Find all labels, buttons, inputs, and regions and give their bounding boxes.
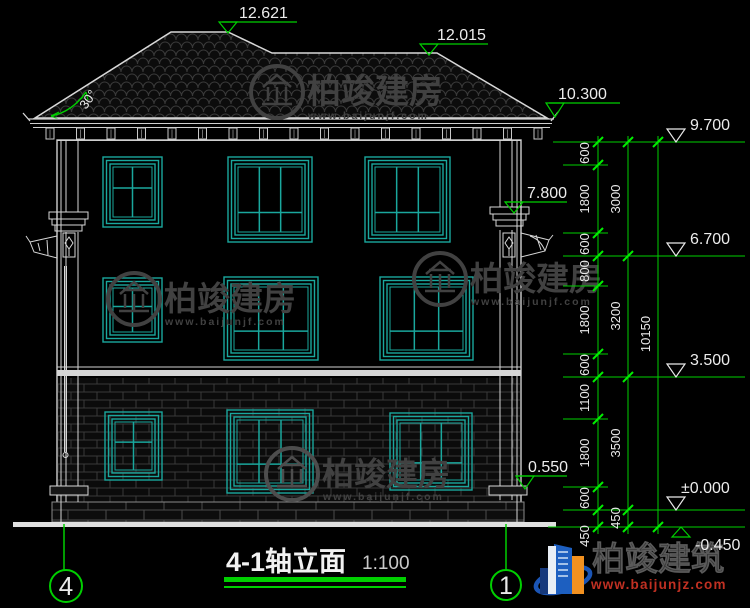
elevation-marker-ridge-main: 12.621: [219, 5, 297, 33]
watermark-url: www.baijunjf.com: [322, 491, 444, 503]
dim-label: 1800: [577, 306, 592, 335]
elevation-value: 7.800: [527, 185, 567, 202]
elevation-drawing: 30°: [0, 0, 750, 608]
dim-label-total: 10150: [638, 316, 653, 352]
building-body: [13, 140, 556, 527]
window: [365, 157, 450, 242]
elevation-marker-porch: 0.550: [516, 459, 568, 489]
axis-bubble-1: 1: [491, 524, 521, 600]
dim-label: 3500: [608, 429, 623, 458]
right-corbel: [521, 233, 553, 257]
elevation-value: 6.700: [690, 231, 730, 248]
dim-label: 1800: [577, 185, 592, 214]
roof: 30°: [23, 32, 558, 121]
dimension-labels: 600 1800 600 800 1800 600 1100 1800 600 …: [577, 142, 653, 547]
dim-label: 600: [577, 487, 592, 509]
dim-label: 800: [577, 260, 592, 282]
elevation-marker-capital: 7.800: [505, 185, 567, 213]
window: [380, 277, 473, 360]
elevation-value: 9.700: [690, 117, 730, 134]
axis-number: 4: [59, 571, 73, 601]
left-pilaster-emblem: [63, 233, 75, 257]
cad-canvas: 30°: [0, 0, 750, 608]
title-block: 4-1轴立面 1:100: [224, 546, 410, 588]
drawing-scale: 1:100: [362, 553, 410, 574]
ground-line: [13, 522, 556, 527]
elevation-value: 12.621: [239, 5, 288, 22]
eave-band: [28, 119, 554, 141]
dim-label: 600: [577, 354, 592, 376]
title-underline-thick: [224, 577, 406, 582]
dim-label: 450: [608, 507, 623, 529]
elevation-marker-ridge-side: 12.015: [420, 27, 488, 55]
elevation-value: 3.500: [690, 352, 730, 369]
watermark-url: www.baijunjf.com: [164, 316, 286, 328]
window: [228, 157, 312, 242]
dim-label: 3000: [608, 185, 623, 214]
floor-band: [57, 367, 521, 376]
elevation-value: 10.300: [558, 86, 607, 103]
dim-label: 3200: [608, 302, 623, 331]
eave-dentils: [46, 128, 542, 139]
elevation-value: 12.015: [437, 27, 486, 44]
elevation-value: 0.550: [528, 459, 568, 476]
watermark-name: 柏竣建房: [307, 72, 443, 111]
elevation-value: ±0.000: [681, 480, 730, 497]
axis-number: 1: [499, 572, 513, 600]
dim-label: 1800: [577, 439, 592, 468]
brand-url: www.baijunjz.com: [590, 577, 727, 592]
watermark-url: www.baijunjf.com: [307, 110, 429, 122]
elevation-marker-floor2: 3.500: [667, 352, 730, 377]
elevation-marker-floor3: 6.700: [667, 231, 730, 256]
dim-label: 450: [577, 525, 592, 547]
window: [103, 157, 162, 227]
right-pilaster-emblem: [503, 233, 515, 257]
watermark-name: 柏竣建房: [164, 280, 296, 317]
title-underline-thin: [224, 586, 406, 588]
brand-icon: [533, 544, 593, 598]
elevation-value: -0.450: [695, 537, 740, 554]
elevation-marker-top: 9.700: [667, 117, 730, 142]
left-corbel: [26, 236, 57, 258]
elevation-marker-zero: ±0.000: [667, 480, 730, 510]
dim-label: 1100: [577, 384, 592, 412]
watermark-url: www.baijunjf.com: [470, 296, 592, 308]
watermark-name: 柏竣建房: [322, 456, 450, 492]
axis-bubble-4: 4: [50, 524, 82, 602]
drawing-title: 4-1轴立面: [226, 546, 346, 577]
dim-label: 600: [577, 142, 592, 164]
dim-label: 600: [577, 233, 592, 255]
plinth: [52, 502, 524, 522]
